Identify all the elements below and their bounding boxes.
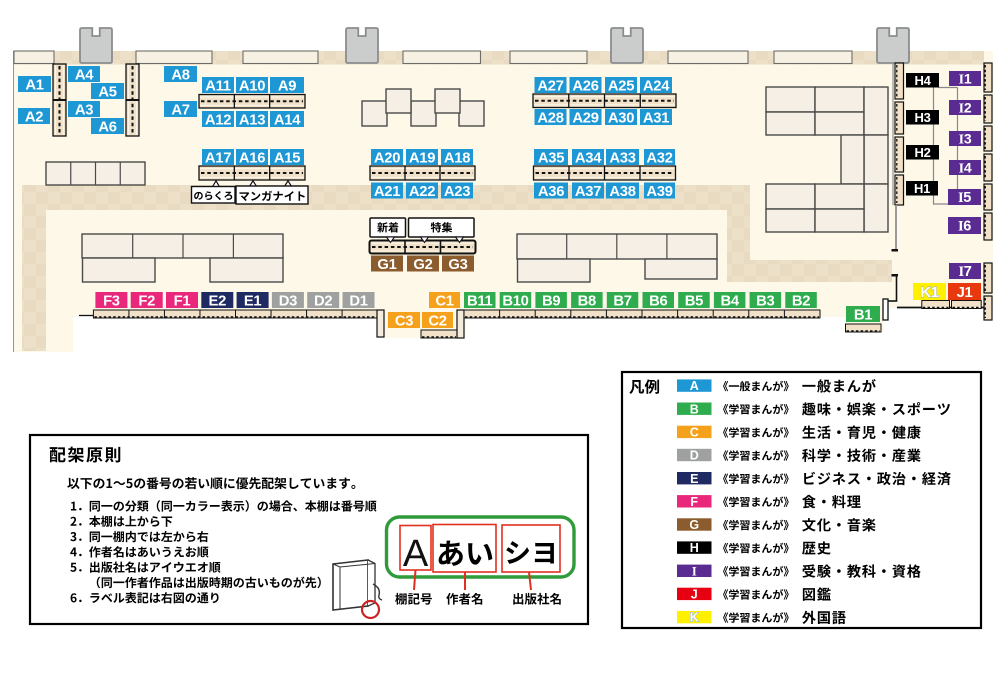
svg-text:B3: B3: [756, 293, 774, 309]
svg-text:A13: A13: [239, 112, 265, 128]
svg-text:A28: A28: [537, 110, 563, 126]
svg-text:I3: I3: [959, 131, 972, 148]
svg-text:A31: A31: [643, 110, 669, 126]
svg-text:A21: A21: [374, 184, 400, 200]
svg-text:A: A: [403, 533, 429, 575]
svg-text:A17: A17: [205, 150, 231, 166]
svg-text:A34: A34: [575, 150, 602, 166]
svg-text:A30: A30: [608, 110, 634, 126]
svg-text:B5: B5: [685, 293, 703, 309]
svg-text:J: J: [691, 588, 698, 602]
svg-text:H3: H3: [914, 110, 930, 125]
svg-text:A33: A33: [609, 150, 635, 166]
svg-text:B7: B7: [613, 293, 631, 309]
svg-text:F1: F1: [174, 293, 191, 309]
svg-text:A15: A15: [274, 150, 300, 166]
svg-text:J1: J1: [957, 285, 973, 301]
svg-text:I4: I4: [959, 160, 972, 177]
svg-text:A23: A23: [444, 184, 470, 200]
svg-text:A11: A11: [205, 78, 230, 94]
svg-text:D2: D2: [314, 293, 332, 309]
svg-text:B9: B9: [542, 293, 560, 309]
svg-text:H: H: [690, 541, 699, 555]
svg-text:K: K: [690, 611, 699, 625]
svg-text:B1: B1: [854, 307, 872, 323]
svg-text:I7: I7: [958, 264, 971, 280]
svg-text:A3: A3: [75, 102, 93, 118]
svg-text:C: C: [690, 426, 699, 440]
svg-text:A12: A12: [205, 112, 231, 128]
svg-text:A24: A24: [643, 78, 670, 94]
svg-text:A18: A18: [444, 150, 470, 166]
svg-text:A9: A9: [278, 78, 296, 94]
svg-text:B6: B6: [649, 293, 667, 309]
svg-text:I1: I1: [959, 71, 972, 88]
svg-text:E1: E1: [244, 293, 262, 309]
svg-text:A20: A20: [374, 150, 400, 166]
svg-text:B8: B8: [578, 293, 596, 309]
svg-text:E2: E2: [209, 293, 227, 309]
svg-text:F: F: [690, 495, 698, 509]
svg-text:I5: I5: [958, 190, 971, 206]
svg-text:A38: A38: [609, 184, 635, 200]
svg-text:G1: G1: [377, 257, 396, 273]
svg-text:A35: A35: [538, 150, 564, 166]
svg-text:E: E: [690, 472, 698, 486]
svg-text:H1: H1: [914, 181, 930, 196]
svg-text:I6: I6: [958, 219, 971, 235]
svg-text:D1: D1: [349, 293, 367, 309]
svg-text:A22: A22: [409, 184, 435, 200]
svg-text:C2: C2: [428, 313, 446, 329]
svg-text:A10: A10: [239, 78, 265, 94]
svg-text:A8: A8: [171, 67, 189, 83]
svg-text:A37: A37: [575, 184, 601, 200]
svg-text:A16: A16: [239, 150, 265, 166]
svg-text:A4: A4: [75, 67, 94, 83]
svg-text:H4: H4: [914, 73, 931, 88]
svg-text:G3: G3: [448, 257, 467, 273]
svg-text:A5: A5: [98, 84, 116, 100]
svg-text:I: I: [692, 564, 697, 578]
svg-text:F2: F2: [138, 293, 155, 309]
svg-text:B4: B4: [720, 293, 739, 309]
svg-text:B11: B11: [467, 293, 492, 309]
svg-text:A19: A19: [409, 150, 435, 166]
svg-text:A27: A27: [537, 78, 563, 94]
svg-text:A14: A14: [274, 112, 301, 128]
svg-text:D3: D3: [279, 293, 297, 309]
svg-text:A: A: [690, 379, 699, 393]
svg-text:F3: F3: [103, 293, 120, 309]
svg-text:A7: A7: [171, 102, 189, 118]
svg-text:C3: C3: [395, 313, 413, 329]
svg-text:G2: G2: [413, 257, 432, 273]
svg-text:A32: A32: [646, 150, 672, 166]
svg-text:A29: A29: [572, 110, 598, 126]
svg-text:A25: A25: [608, 78, 634, 94]
svg-text:C1: C1: [435, 293, 453, 309]
svg-text:B10: B10: [502, 293, 528, 309]
svg-text:K1: K1: [920, 285, 938, 301]
svg-text:G: G: [689, 518, 699, 532]
svg-text:D: D: [690, 449, 699, 463]
svg-text:H2: H2: [914, 145, 930, 160]
svg-text:I2: I2: [959, 100, 972, 117]
svg-text:A2: A2: [25, 109, 43, 125]
svg-text:B: B: [690, 402, 699, 416]
svg-text:A26: A26: [572, 78, 598, 94]
svg-text:A6: A6: [98, 119, 116, 135]
svg-text:A1: A1: [25, 77, 43, 93]
svg-text:B2: B2: [792, 293, 810, 309]
svg-text:A39: A39: [646, 184, 672, 200]
svg-text:A36: A36: [538, 184, 564, 200]
